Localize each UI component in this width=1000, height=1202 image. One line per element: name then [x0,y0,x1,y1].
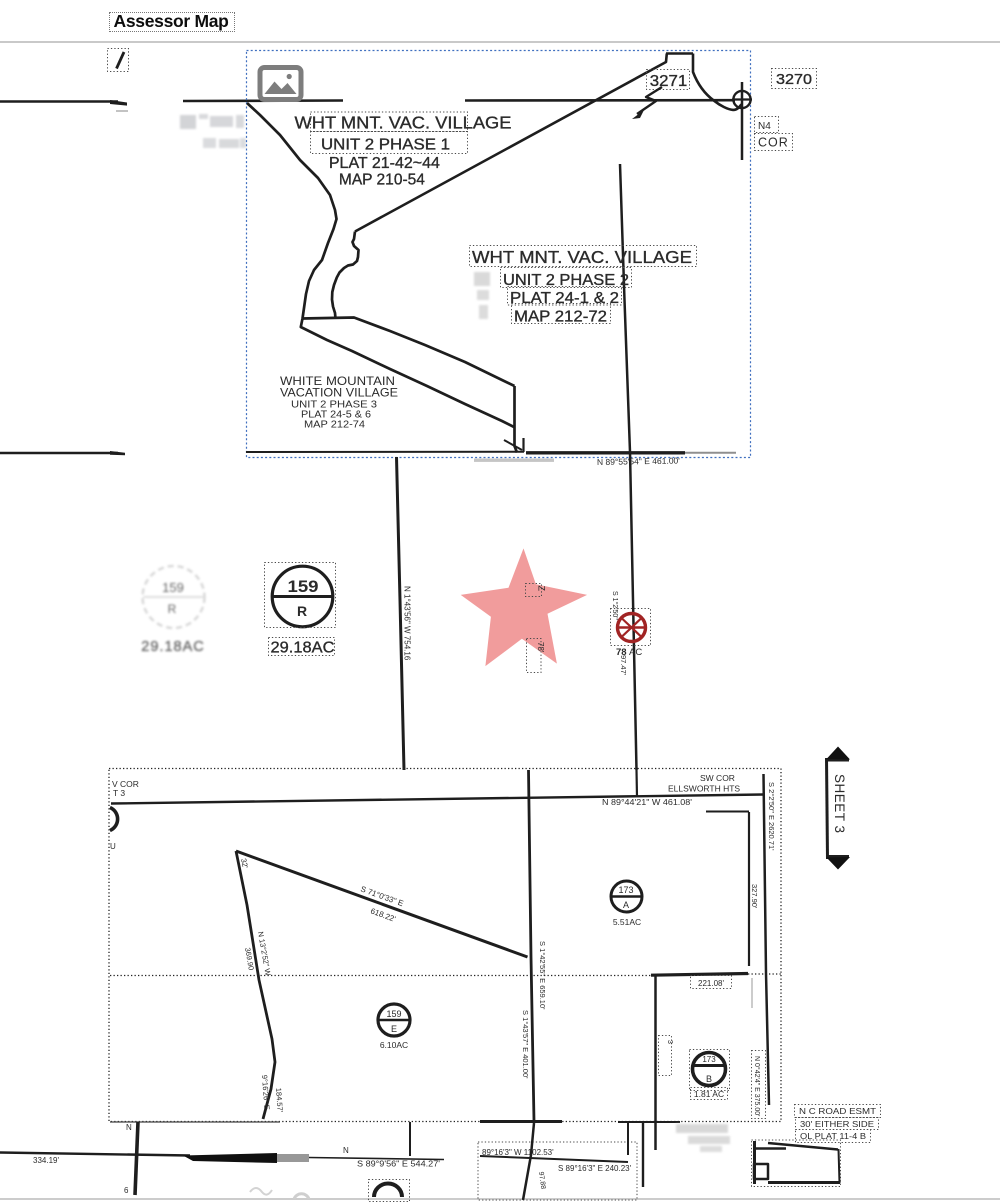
svg-text:29.18AC: 29.18AC [271,640,335,657]
svg-text:221.08': 221.08' [698,979,724,988]
svg-text:S 2°2'50" E 2620.71': S 2°2'50" E 2620.71' [767,782,776,851]
svg-text:PLAT 21-42~44: PLAT 21-42~44 [329,155,440,172]
svg-text:N: N [343,1146,349,1155]
svg-text:MAP 210-54: MAP 210-54 [339,172,425,189]
svg-text:AC: AC [629,647,642,658]
svg-text:159: 159 [386,1009,401,1019]
svg-text:R: R [168,602,177,616]
svg-text:N 0°42'4" E 375.00': N 0°42'4" E 375.00' [753,1056,761,1117]
svg-text:184.57': 184.57' [274,1088,285,1114]
svg-text:N C ROAD ESMT: N C ROAD ESMT [799,1106,876,1116]
svg-text:S 1°2'50": S 1°2'50" [611,591,619,620]
svg-text:6.10AC: 6.10AC [380,1040,408,1050]
svg-text:159: 159 [162,580,184,595]
svg-text:R: R [297,603,307,619]
svg-text:T 3: T 3 [113,788,125,798]
svg-text:3271: 3271 [650,73,688,90]
svg-text:N 89°55'54" E 461.00': N 89°55'54" E 461.00' [597,456,680,467]
svg-text:3270: 3270 [776,71,812,88]
svg-text:S 1°43'57" E 401.00': S 1°43'57" E 401.00' [521,1010,530,1079]
svg-text:N 1°43'56" W 754.16: N 1°43'56" W 754.16 [403,586,412,661]
svg-text:U: U [110,842,116,851]
svg-text:WHT MNT. VAC. VILLAGE: WHT MNT. VAC. VILLAGE [295,113,512,133]
svg-text:SHEET 3: SHEET 3 [832,774,847,834]
svg-text:COR: COR [758,136,789,150]
svg-text:327.90': 327.90' [750,884,759,909]
svg-text:N 89°44'21" W 461.08': N 89°44'21" W 461.08' [602,797,692,807]
svg-text:97.88: 97.88 [537,1171,546,1189]
svg-text:SW COR: SW COR [700,773,735,783]
svg-text:78': 78' [536,642,545,653]
svg-text:173: 173 [702,1055,716,1064]
svg-text:5.51AC: 5.51AC [613,917,641,927]
svg-text:B: B [706,1074,712,1084]
svg-text:S 89°9'56" E 544.27': S 89°9'56" E 544.27' [357,1160,441,1169]
svg-text:A: A [623,900,629,910]
svg-text:N: N [126,1123,132,1132]
svg-text:MAP 212-72: MAP 212-72 [514,309,607,326]
svg-text:97.47': 97.47' [619,655,628,676]
svg-text:9°16'26" E: 9°16'26" E [260,1075,271,1111]
svg-text:30' EITHER SIDE: 30' EITHER SIDE [800,1119,874,1129]
svg-text:MAP 212-74: MAP 212-74 [304,420,365,431]
svg-text:UNIT 2 PHASE 1: UNIT 2 PHASE 1 [321,137,450,154]
svg-text:E: E [391,1024,397,1034]
svg-text:3: 3 [666,1040,673,1044]
svg-text:VACATION VILLAGE: VACATION VILLAGE [280,386,398,400]
svg-text:PLAT 24-1 & 2: PLAT 24-1 & 2 [510,290,619,307]
svg-text:S 89°16'3" E 240.23': S 89°16'3" E 240.23' [558,1164,632,1173]
svg-text:Z: Z [537,586,547,592]
svg-text:29.18AC: 29.18AC [141,639,204,655]
svg-text:334.19': 334.19' [33,1156,59,1165]
svg-text:6: 6 [124,1186,129,1195]
svg-text:ELLSWORTH HTS: ELLSWORTH HTS [668,784,740,794]
svg-text:N4: N4 [758,121,771,132]
svg-text:173: 173 [618,885,633,895]
svg-text:WHT MNT. VAC. VILLAGE: WHT MNT. VAC. VILLAGE [472,247,692,267]
svg-text:1.81 AC: 1.81 AC [694,1089,724,1099]
svg-text:159: 159 [288,578,319,596]
svg-text:S 1°42'55" E 659.10': S 1°42'55" E 659.10' [538,941,547,1010]
